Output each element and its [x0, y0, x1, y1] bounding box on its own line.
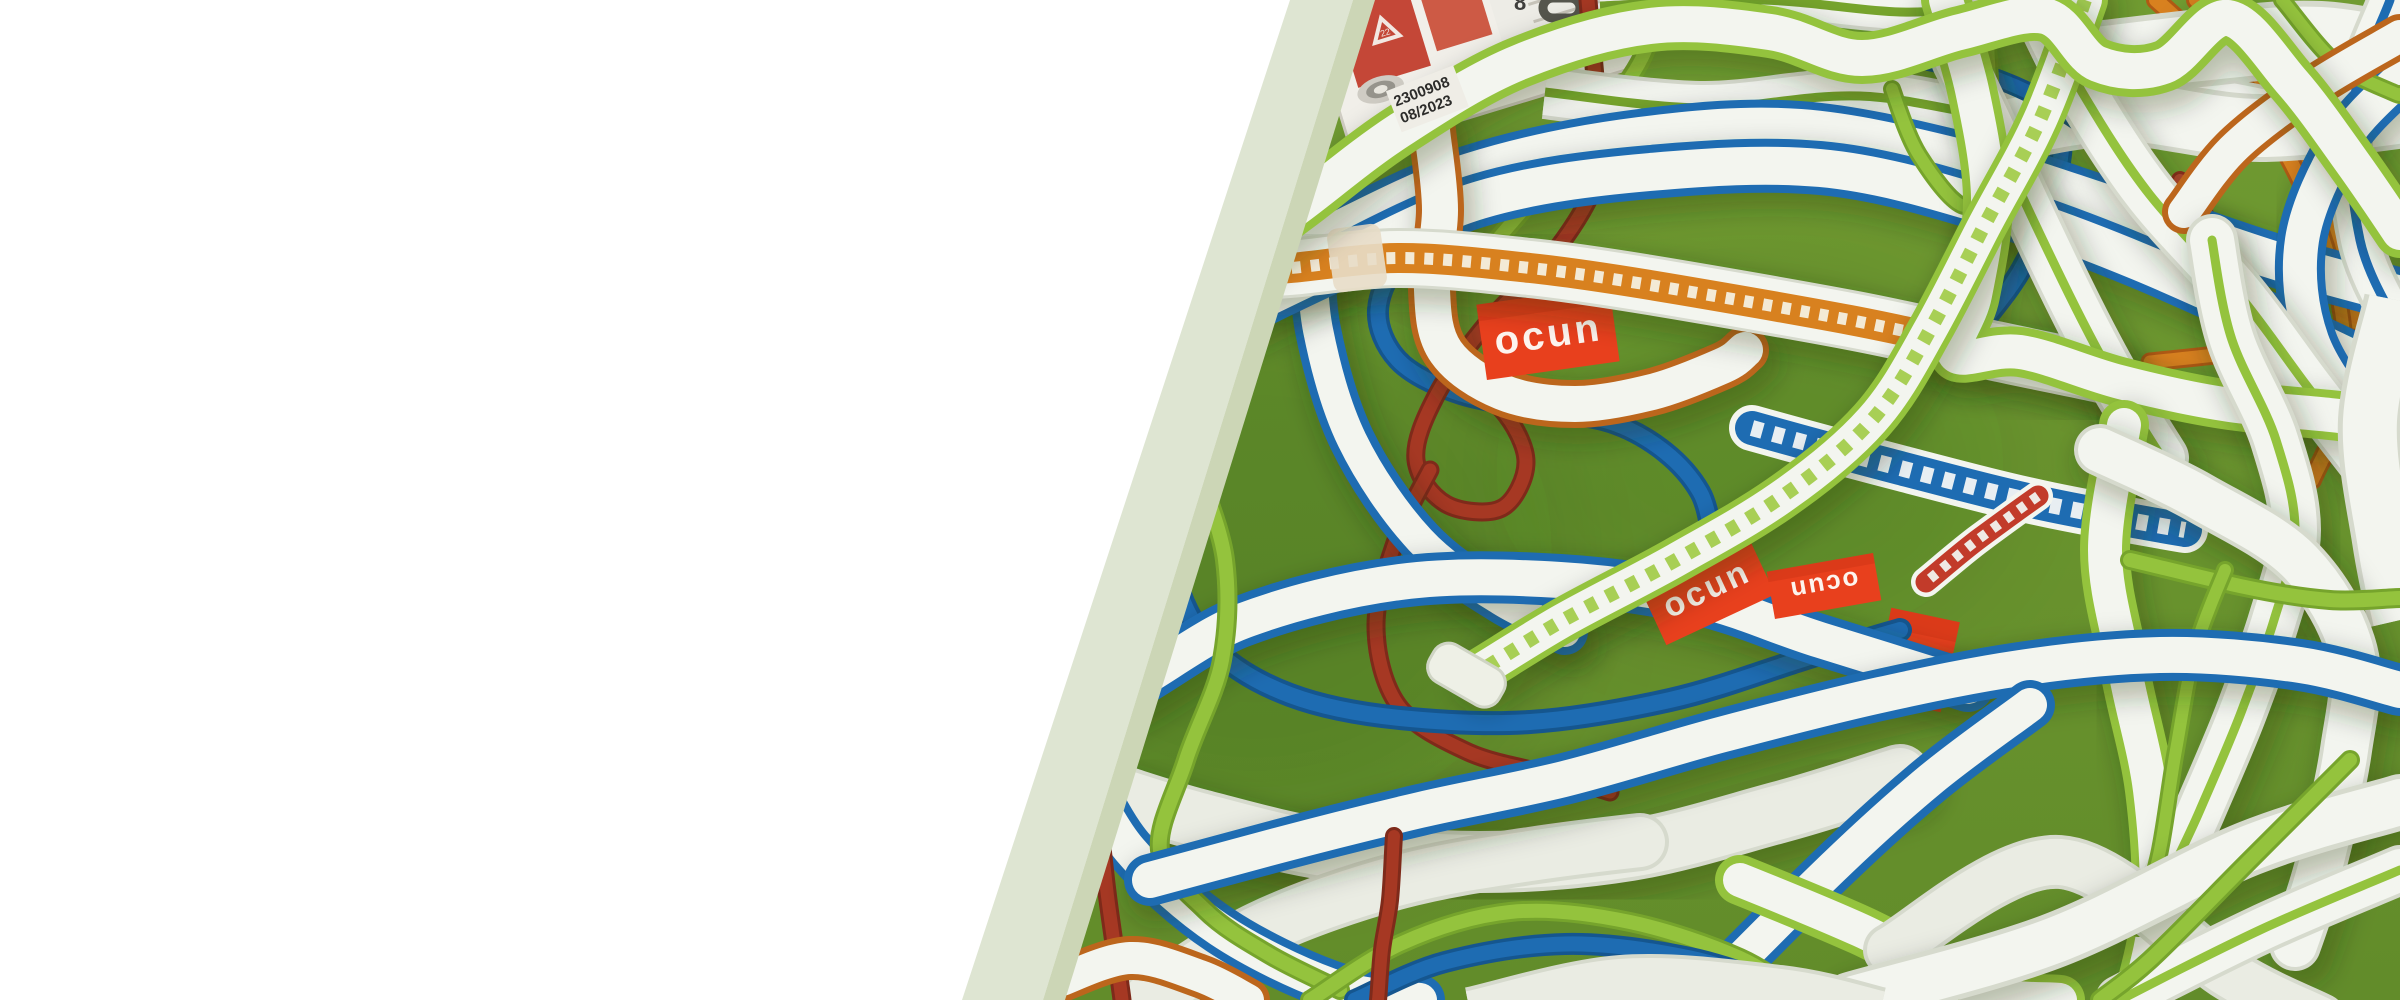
svg-text:8: 8: [1514, 0, 1526, 15]
